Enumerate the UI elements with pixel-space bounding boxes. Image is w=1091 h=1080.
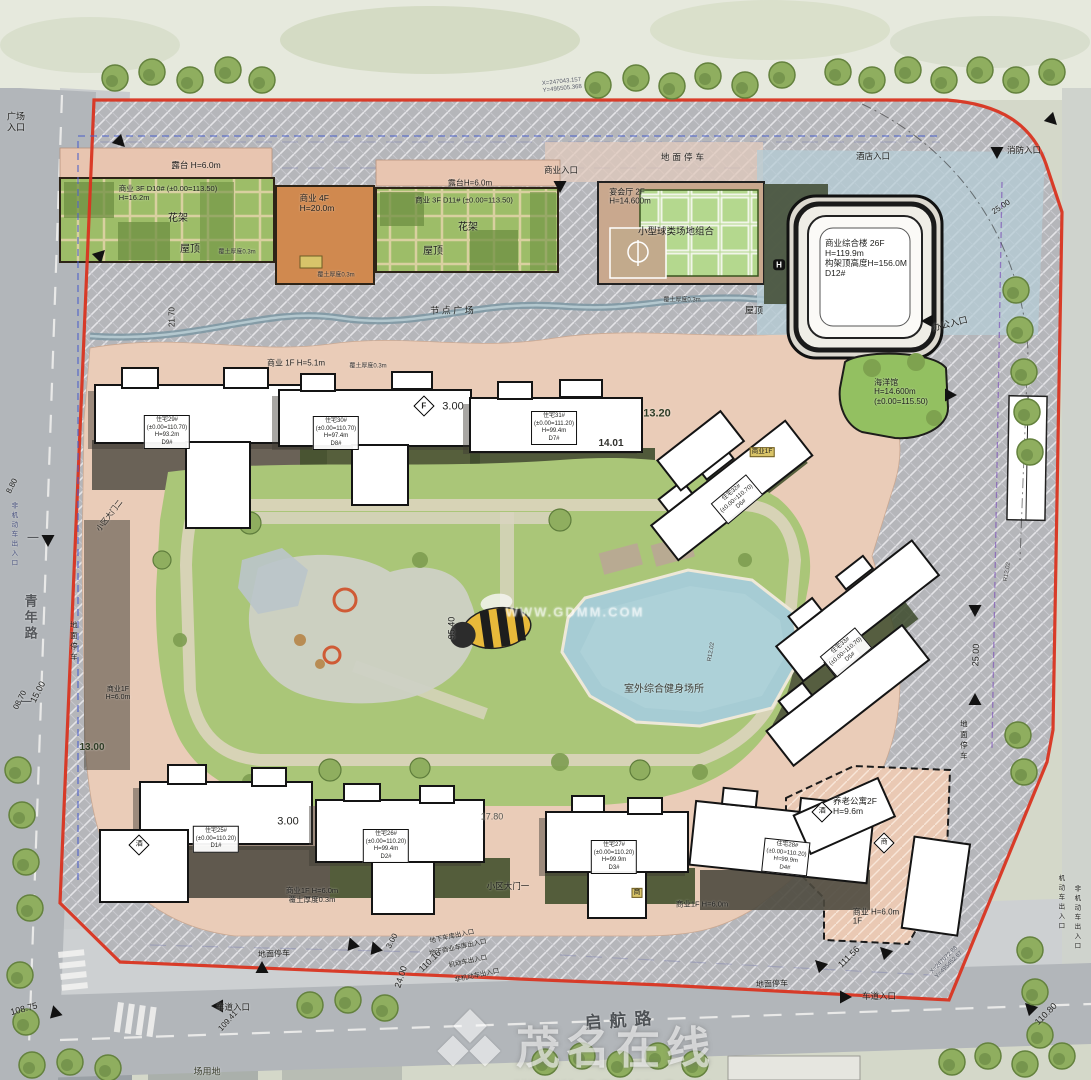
tree-shade (23, 1062, 35, 1074)
tree-shade (106, 75, 118, 87)
tree-shade (61, 1059, 73, 1071)
tree-shade (1018, 409, 1030, 421)
tree-shade (686, 1061, 698, 1073)
tree-shade (99, 1065, 111, 1077)
tree-shade (589, 82, 601, 94)
tree-shade (863, 77, 875, 89)
tree-shade (1009, 732, 1021, 744)
tree-shade (1053, 1053, 1065, 1065)
tree-shade (1021, 449, 1033, 461)
site-plan-canvas: 广场 入口露台 H=6.0m商业 3F D10# (±0.00=113.50) … (0, 0, 1091, 1080)
tree-shade (573, 1053, 585, 1065)
tree-shade (663, 83, 675, 95)
tree-shade (1043, 69, 1055, 81)
tree-shade (699, 73, 711, 85)
tree-shade (376, 1005, 388, 1017)
tower-26f (788, 196, 942, 358)
tree-shade (1026, 989, 1038, 1001)
tree-shade (13, 812, 25, 824)
tree-shade (219, 67, 231, 79)
tree-shade (339, 997, 351, 1009)
tree-shade (253, 77, 265, 89)
tree-shade (611, 1061, 623, 1073)
tree-shade (773, 72, 785, 84)
tree-shade (979, 1053, 991, 1065)
tree-shade (627, 75, 639, 87)
tree-shade (11, 972, 23, 984)
tree-shade (943, 1059, 955, 1071)
building-small-right (902, 837, 970, 936)
tree-shade (899, 67, 911, 79)
tree-shade (1015, 769, 1027, 781)
tree-shade (536, 1059, 548, 1071)
tree-shade (1007, 77, 1019, 89)
tree-shade (21, 905, 33, 917)
tree-shade (181, 77, 193, 89)
tree-shade (17, 1019, 29, 1031)
tree-shade (736, 82, 748, 94)
tree-shade (143, 69, 155, 81)
tree-shade (649, 1053, 661, 1065)
tree-shade (1031, 1032, 1043, 1044)
tree-shade (17, 859, 29, 871)
tree-shade (9, 767, 21, 779)
tree-shade (1015, 369, 1027, 381)
site-plan-drawing (0, 0, 1091, 1080)
tree-shade (829, 69, 841, 81)
tree-shade (971, 67, 983, 79)
tree-shade (301, 1002, 313, 1014)
tree-shade (1011, 327, 1023, 339)
tree-shade (1021, 947, 1033, 959)
tree-shade (1007, 287, 1019, 299)
tree-shade (935, 77, 947, 89)
aquarium-blob (840, 353, 948, 438)
tree-shade (1016, 1061, 1028, 1073)
